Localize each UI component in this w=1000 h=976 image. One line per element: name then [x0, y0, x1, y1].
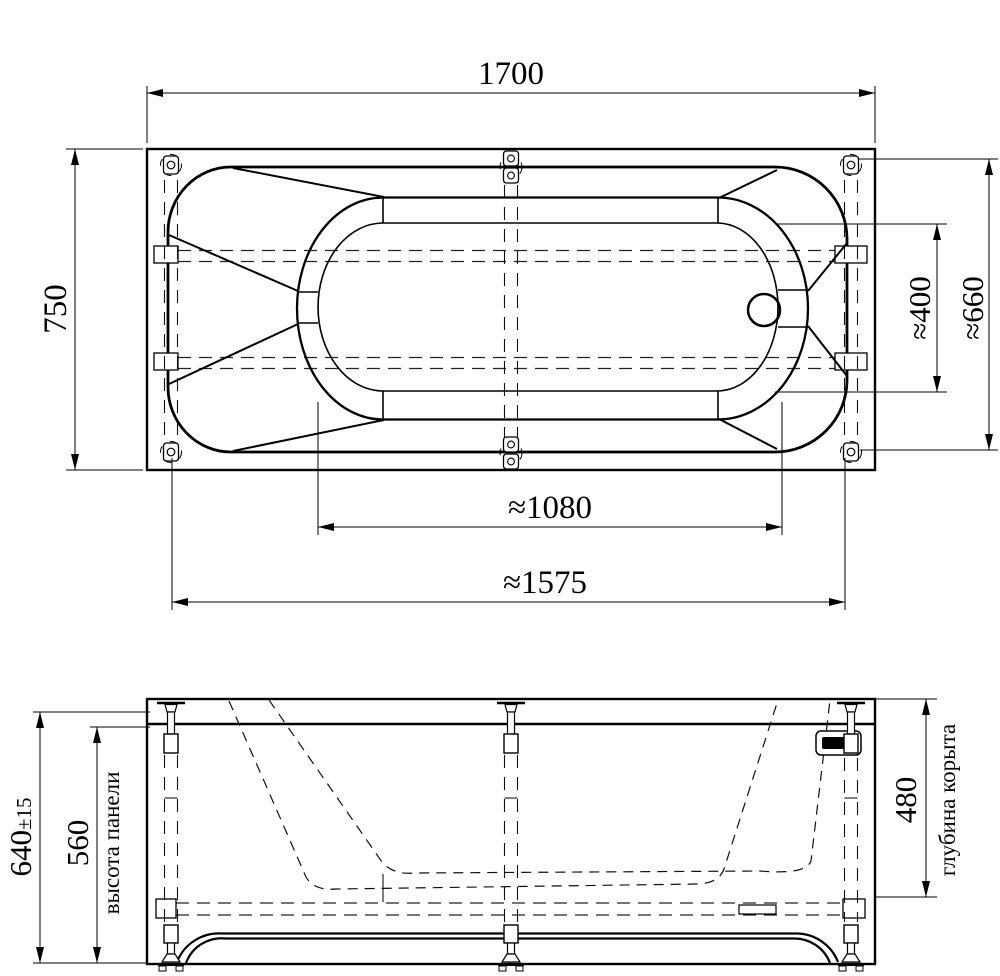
dim-750: 750	[38, 149, 143, 470]
dim-560-label: 560	[60, 820, 95, 867]
bowl-outer-edge	[297, 198, 808, 420]
dim-1080-label: ≈1080	[508, 490, 592, 526]
dim-480: 480 глубина корыта	[875, 699, 960, 897]
fastener-icon	[841, 442, 862, 463]
wall-diagonals	[169, 168, 847, 451]
channel-cap	[154, 353, 178, 370]
foot-left	[157, 703, 185, 971]
bowl-inner-edge	[318, 223, 778, 391]
dim-1700: 1700	[147, 56, 875, 143]
rail-cap	[156, 899, 176, 918]
drain-fitting	[739, 905, 776, 914]
bathtub-drawing: 1700 750 ≈400 ≈660	[0, 0, 1000, 976]
dim-1700-label: 1700	[478, 56, 544, 92]
dim-640-label: 640±15	[3, 797, 38, 876]
foot-centerlines	[165, 180, 858, 443]
plan-tub-rim	[168, 167, 847, 452]
elevation-view: 640±15 560 высота панели 480 глубина кор…	[3, 699, 960, 971]
bowl-profile-near	[269, 700, 830, 873]
rail-cap	[843, 899, 865, 918]
fastener-icon	[161, 155, 182, 176]
dim-1080: ≈1080	[318, 402, 782, 535]
fastener-icon	[161, 442, 182, 463]
fastener-icon	[841, 155, 862, 176]
dim-480-label: 480	[888, 777, 923, 824]
dim-660-label: ≈660	[955, 276, 990, 340]
bowl-depth-caption: глубина корыта	[935, 724, 960, 876]
dim-1575: ≈1575	[172, 458, 845, 610]
dim-560: 560 высота панели	[60, 727, 150, 963]
dim-750-label: 750	[38, 284, 74, 334]
channel-cap	[835, 246, 867, 263]
plan-view: 1700 750 ≈400 ≈660	[38, 56, 998, 610]
panel-height-caption: высота панели	[99, 772, 124, 915]
channel-cap	[154, 246, 178, 263]
bowl-profile-far	[229, 701, 777, 889]
drain-hole	[748, 294, 780, 326]
dim-400-label: ≈400	[902, 276, 937, 340]
foot-center	[497, 703, 525, 971]
technical-drawing-page: 1700 750 ≈400 ≈660	[0, 0, 1000, 976]
dim-1575-label: ≈1575	[503, 565, 587, 601]
